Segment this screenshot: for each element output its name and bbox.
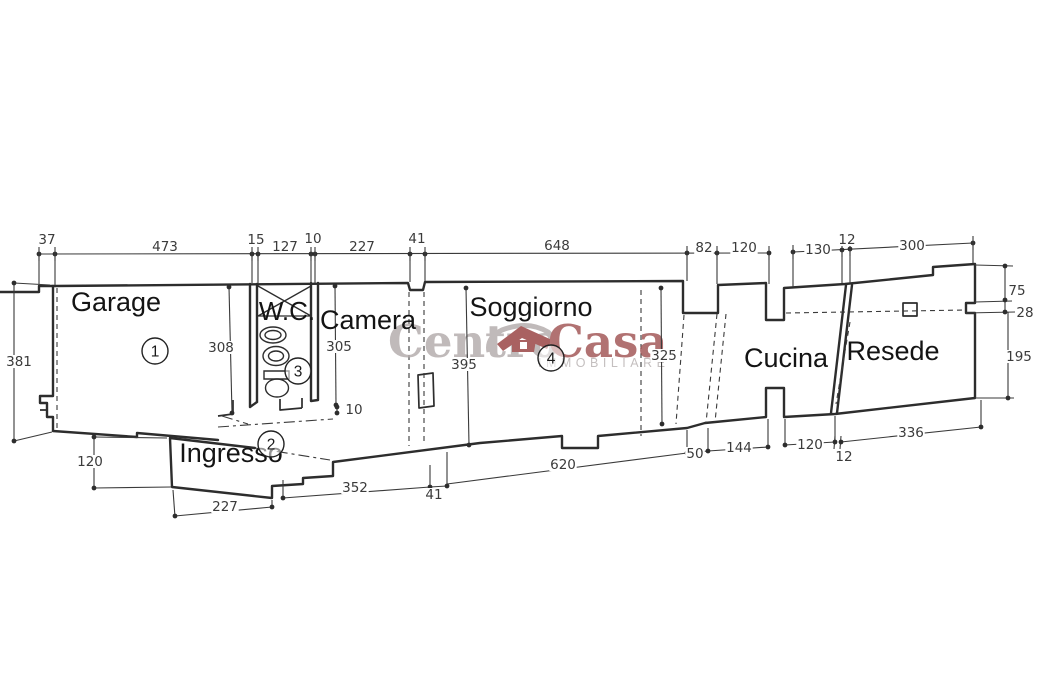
wc-left-wall xyxy=(250,284,257,407)
dimension-label: 127 xyxy=(272,239,298,255)
dimension-line xyxy=(14,283,50,285)
dimension-dot xyxy=(660,422,665,427)
dimension-dot xyxy=(464,286,469,291)
dimension-dot xyxy=(1003,264,1008,269)
dimension-label: 381 xyxy=(6,354,32,370)
dimension-dot xyxy=(333,284,338,289)
room-number-badge: 1 xyxy=(151,344,160,361)
resede-chimney-square xyxy=(903,303,917,316)
dimension-dot xyxy=(659,286,664,291)
dimension-dot xyxy=(335,405,340,410)
dimension-label: 15 xyxy=(247,232,264,248)
dimension-dot xyxy=(783,443,788,448)
room-label: Soggiorno xyxy=(469,292,592,322)
dimension-label: 227 xyxy=(349,239,375,255)
room-label: Cucina xyxy=(744,343,829,373)
dimension-label: 352 xyxy=(342,480,368,496)
dimension-line xyxy=(94,437,167,438)
dimension-dot xyxy=(281,496,286,501)
dimension-dot xyxy=(92,486,97,491)
dimension-label: 195 xyxy=(1006,349,1032,365)
dimension-label: 395 xyxy=(451,357,477,373)
dimension-dot xyxy=(445,484,450,489)
dimension-label: 144 xyxy=(726,440,752,456)
dimension-dot xyxy=(92,435,97,440)
dimension-label: 300 xyxy=(899,238,925,254)
dimension-label: 130 xyxy=(805,242,831,258)
dimension-dot xyxy=(227,285,232,290)
dimension-line xyxy=(94,487,171,488)
room-number-badge: 4 xyxy=(547,351,556,368)
dimension-dot xyxy=(839,440,844,445)
dimension-label: 50 xyxy=(686,446,703,462)
dimension-label: 473 xyxy=(152,239,178,255)
dimension-label: 12 xyxy=(838,232,855,248)
dimension-label: 41 xyxy=(425,487,442,503)
dimension-dot xyxy=(230,411,235,416)
dimension-dot xyxy=(335,411,340,416)
dimension-label: 325 xyxy=(651,348,677,364)
dimension-dot xyxy=(833,440,838,445)
dimension-label: 120 xyxy=(731,240,757,256)
dimension-label: 82 xyxy=(695,240,712,256)
dimension-label: 227 xyxy=(212,499,238,515)
dimension-line xyxy=(173,490,175,517)
dimension-dot xyxy=(270,505,275,510)
dimension-dot xyxy=(12,439,17,444)
dimension-dot xyxy=(706,449,711,454)
dimension-label: 120 xyxy=(797,437,823,453)
dimension-label: 10 xyxy=(304,231,321,247)
room-number-badge: 2 xyxy=(267,437,276,454)
dimension-dot xyxy=(1003,298,1008,303)
dimension-label: 120 xyxy=(77,454,103,470)
room-label: Garage xyxy=(71,287,161,317)
floor-plan-svg: Centro Casa IMMOBILIARE 3747315127102274… xyxy=(0,0,1038,692)
room-number-badge: 3 xyxy=(294,364,303,381)
wc-sink-fixture xyxy=(260,327,286,343)
wc-bidet-fixture xyxy=(263,347,289,366)
under-wc-step-walls xyxy=(40,398,302,416)
dimension-label: 12 xyxy=(835,449,852,465)
dimension-dot xyxy=(1006,396,1011,401)
dimension-dot xyxy=(1003,310,1008,315)
dimension-line xyxy=(39,253,769,254)
wc-sink-basin xyxy=(265,331,281,340)
dimension-dot xyxy=(173,514,178,519)
room-label: Camera xyxy=(320,305,417,335)
gap-pillar xyxy=(418,373,434,408)
dimension-label: 41 xyxy=(408,231,425,247)
dimension-dot xyxy=(979,425,984,430)
dimension-label: 28 xyxy=(1016,305,1033,321)
wc-toilet-bowl xyxy=(266,379,289,397)
floor-plan-page: Centro Casa IMMOBILIARE 3747315127102274… xyxy=(0,0,1038,692)
dimension-label: 37 xyxy=(38,232,55,248)
dimension-label: 648 xyxy=(544,238,570,254)
dimension-dot xyxy=(467,443,472,448)
dimension-lines-layer xyxy=(12,236,1015,518)
room-label: W.C. xyxy=(259,296,315,326)
watermark-logo: Centro Casa IMMOBILIARE xyxy=(388,315,669,370)
dimension-labels-layer: 3747315127102274164882120130123007528195… xyxy=(5,231,1035,515)
wc-bidet-basin xyxy=(269,351,284,361)
dimension-label: 308 xyxy=(208,340,234,356)
dimension-dot xyxy=(12,281,17,286)
room-label: Resede xyxy=(846,336,939,366)
dimension-label: 75 xyxy=(1008,283,1025,299)
dimension-label: 336 xyxy=(898,425,924,441)
dimension-label: 620 xyxy=(550,457,576,473)
dimension-label: 305 xyxy=(326,339,352,355)
dimension-line xyxy=(14,432,52,441)
dimension-label: 10 xyxy=(345,402,362,418)
dimension-dot xyxy=(766,445,771,450)
